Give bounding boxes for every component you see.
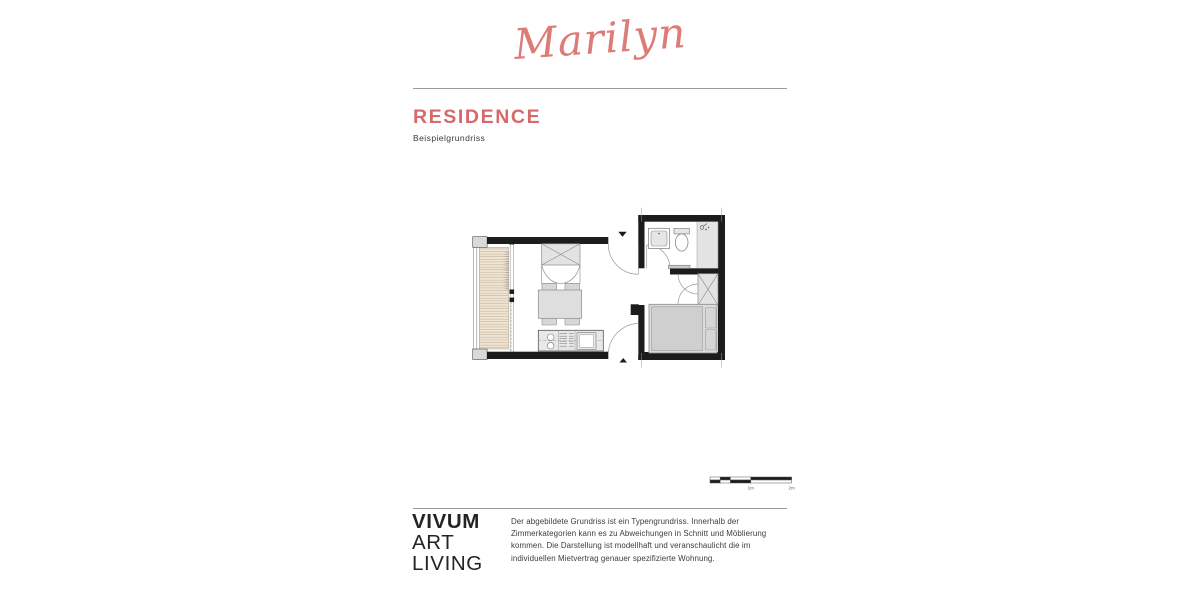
pillow (706, 308, 717, 329)
bathroom (649, 222, 719, 269)
floor-plan (470, 205, 740, 370)
shower (697, 222, 718, 269)
balcony-wall-stub-top (473, 237, 487, 248)
radiator (669, 265, 691, 268)
footer-divider-line (413, 508, 787, 509)
wall-bathroom-left (638, 215, 644, 268)
wall-right-top (638, 215, 725, 222)
scale-label-1m: 1m (748, 486, 755, 491)
bedroom-wardrobe-doors (678, 274, 698, 304)
brand-logo: VIVUM ART LIVING (412, 512, 483, 574)
entry-door-top (608, 244, 638, 274)
entry-arrow-bottom (620, 358, 628, 363)
scale-bar: 1m 2m (708, 475, 798, 495)
double-bed (649, 304, 717, 353)
logo-line-living: LIVING (412, 554, 483, 575)
wardrobe-doors (542, 265, 580, 284)
balcony-railing (473, 247, 476, 349)
wall-right-side (718, 215, 725, 360)
dining-table (538, 290, 581, 318)
disclaimer-text: Der abgebildete Grundriss ist ein Typeng… (511, 516, 789, 565)
section-heading: RESIDENCE (413, 106, 541, 129)
bathroom-sink (649, 228, 670, 248)
brochure-page: Marilyn RESIDENCE Beispielgrundriss (0, 0, 1200, 600)
wall-pier (631, 304, 639, 315)
balcony (473, 237, 509, 360)
header-divider-line (413, 88, 787, 89)
pillow (706, 330, 717, 351)
logo-line-art: ART (412, 533, 483, 554)
living-room-furniture (538, 244, 603, 351)
stove (560, 333, 574, 349)
entry-door-bottom (608, 323, 638, 355)
section-subtitle: Beispielgrundriss (413, 133, 485, 143)
mattress (652, 307, 703, 351)
wall-living-bottom (487, 352, 608, 359)
sink-burners (547, 334, 554, 341)
balcony-wall-stub-bottom (473, 349, 487, 360)
entry-arrow-top (618, 232, 626, 237)
scale-label-2m: 2m (788, 486, 795, 491)
wall-living-top (487, 237, 608, 244)
window-ledge-hatch (504, 251, 509, 290)
toilet (674, 228, 689, 251)
apartment-name-script: Marilyn (0, 0, 1200, 105)
kitchen-counter (538, 330, 603, 351)
bedroom (649, 274, 718, 353)
wall-bedroom-left (638, 305, 644, 360)
logo-line-vivum: VIVUM (412, 512, 483, 533)
